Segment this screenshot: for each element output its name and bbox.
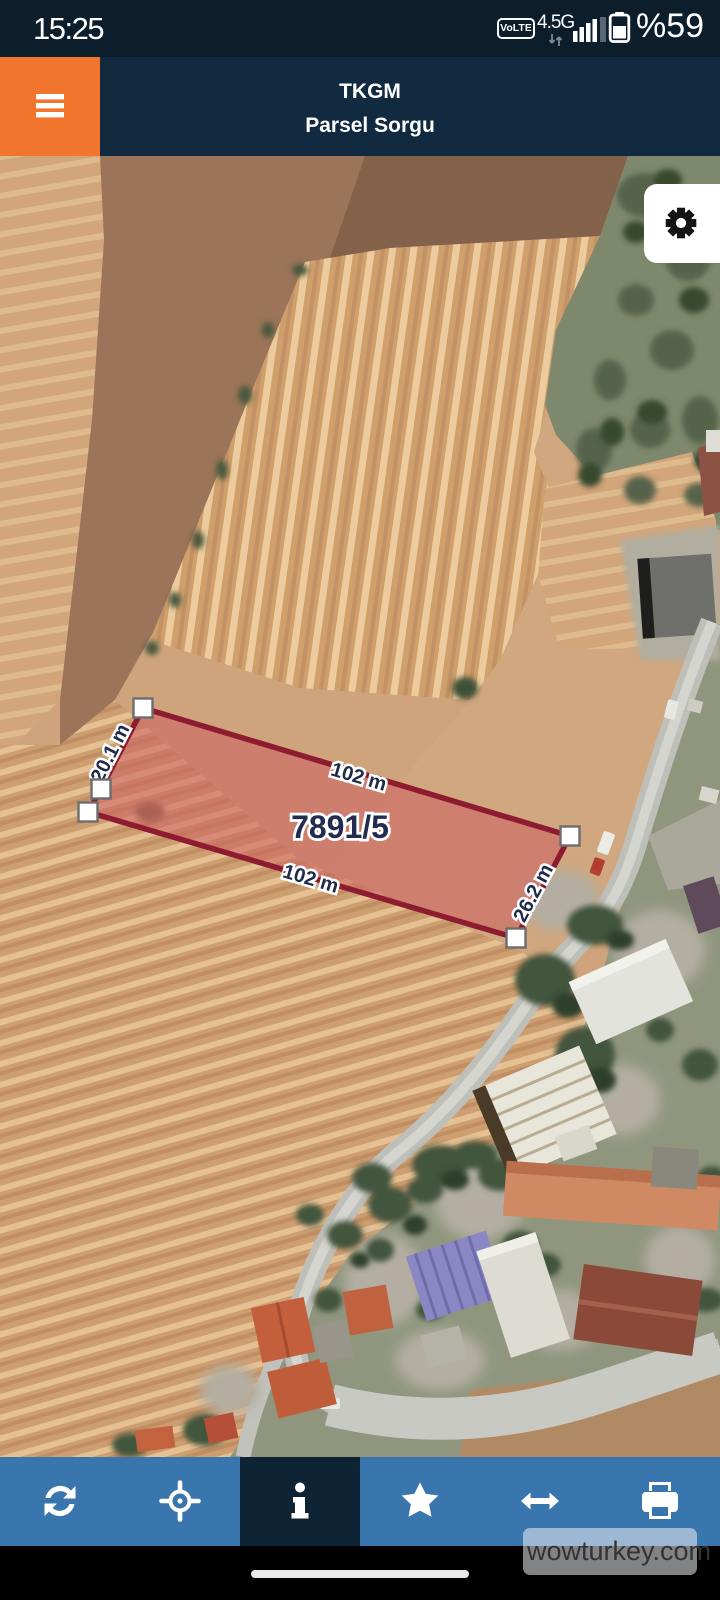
svg-text:7891/5: 7891/5: [291, 809, 389, 845]
